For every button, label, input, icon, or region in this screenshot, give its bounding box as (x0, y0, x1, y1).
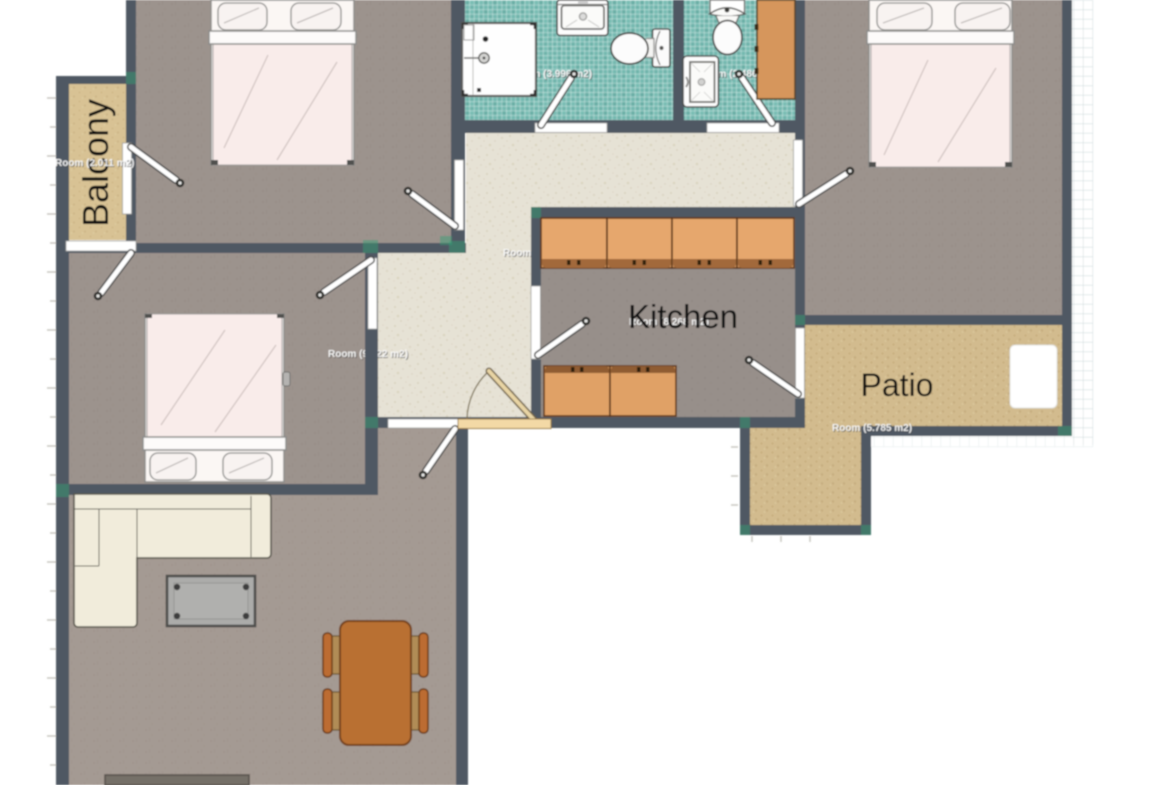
svg-text:Patio: Patio (861, 367, 934, 403)
svg-text:Room (5.785 m2): Room (5.785 m2) (832, 423, 912, 434)
svg-text:Kitchen: Kitchen (628, 298, 738, 335)
svg-text:Room (2.011 m2): Room (2.011 m2) (55, 158, 134, 169)
